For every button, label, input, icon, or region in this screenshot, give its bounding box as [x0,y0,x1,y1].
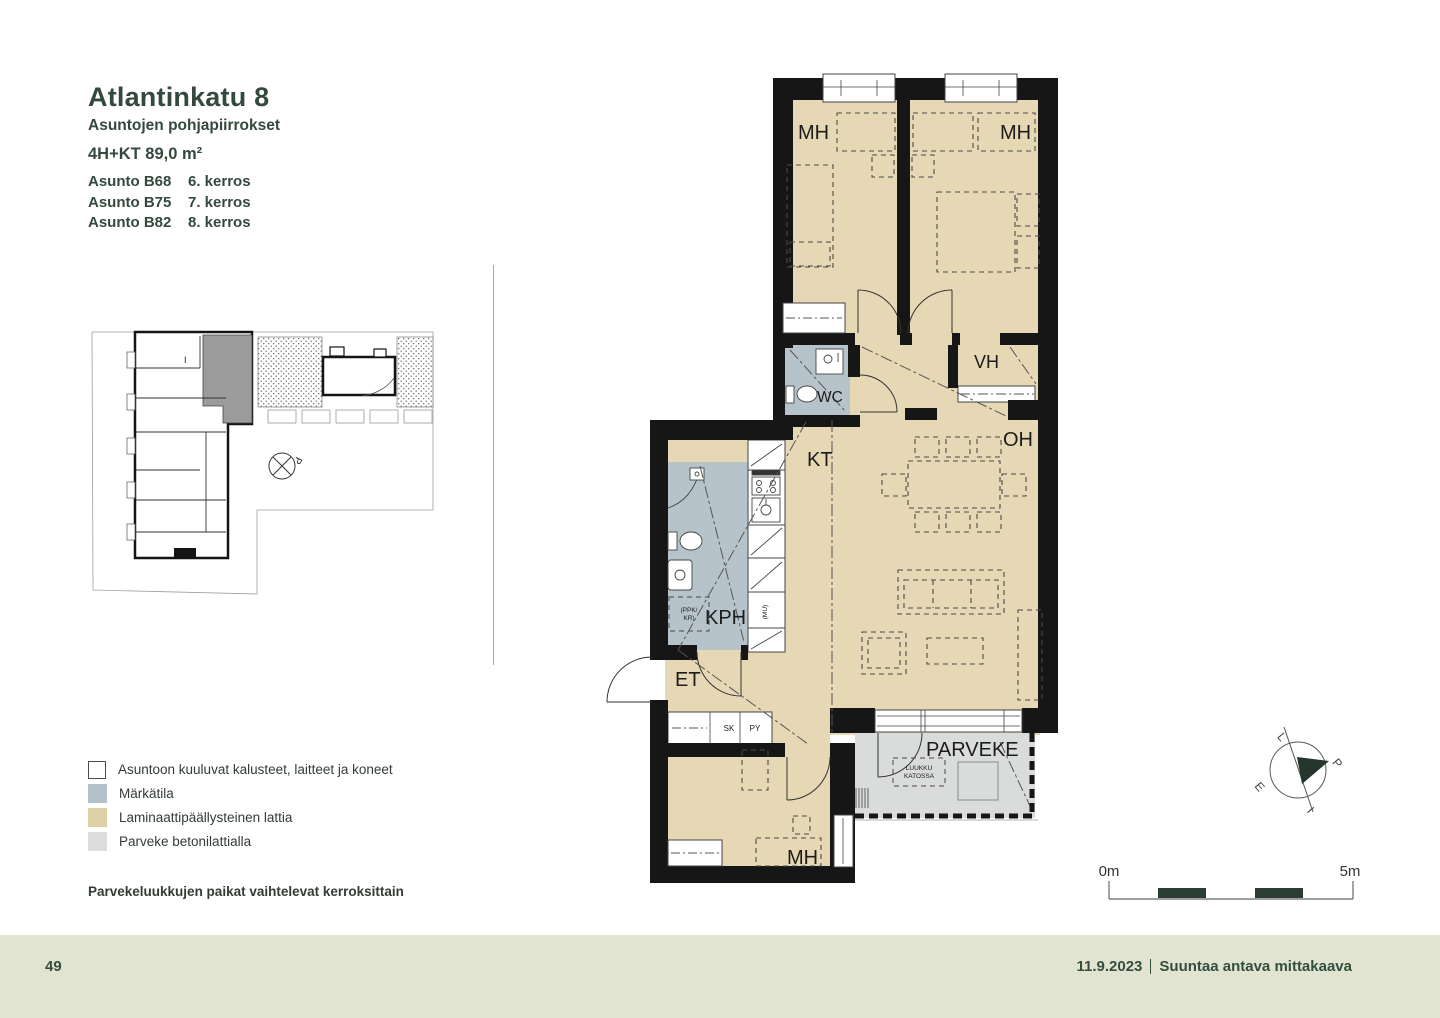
legend-label: Asuntoon kuuluvat kalusteet, laitteet ja… [118,762,393,777]
hatch-note: LUUKKU [906,765,933,772]
stove-icon [752,470,780,475]
footer-scale-note: Suuntaa antava mittakaava [1159,958,1352,975]
footer-info: 11.9.2023 Suuntaa antava mittakaava [1077,958,1353,975]
footer-band [0,935,1440,1018]
site-plan: P I [80,320,460,610]
vertical-divider [493,265,494,665]
apartment-type: 4H+KT 89,0 m² [88,145,202,164]
legend-label: Märkätila [119,786,174,801]
scale-start-label: 0m [1099,863,1120,880]
compass-letters: L P E I [1252,730,1346,816]
toilet-icon [680,532,702,550]
footer-separator [1150,959,1151,974]
room-label-entry: ET [675,669,701,691]
room-label-kitchen: KT [807,449,833,471]
legend: Asuntoon kuuluvat kalusteet, laitteet ja… [88,760,393,856]
washer-note: (PPK/ [681,607,698,614]
dresser [668,840,722,866]
footer-date: 11.9.2023 [1077,958,1143,975]
legend-swatch-wetroom [88,784,107,803]
closet-label-py: PY [750,724,761,733]
dresser [783,303,845,333]
outbuilding-detail [374,349,386,357]
site-unit-mark: I [184,355,187,365]
unit-row: Asunto B82 8. kerros [88,213,251,234]
toilet-icon [786,386,794,403]
site-compass: P [269,453,304,479]
apartment-floor-plan: MH MH VH WC OH KT KPH ET SK PY MH PARVEK… [600,60,1080,900]
sink-icon [668,560,692,590]
site-north-label: P [291,455,304,466]
room-label-bedroom: MH [787,847,818,869]
legend-label: Laminaattipäällysteinen lattia [119,810,292,825]
yard-plot [370,410,398,423]
unit-list: Asunto B68 6. kerros Asunto B75 7. kerro… [88,172,251,234]
toilet-icon [797,386,817,402]
yard-plot [404,410,432,423]
unit-floor: 7. kerros [188,193,251,214]
legend-swatch-balcony [88,832,107,851]
courtyard-deck [397,337,433,407]
page-number: 49 [45,958,62,975]
room-label-wc: WC [817,389,843,406]
floor-plan-page: Atlantinkatu 8 Asuntojen pohjapiirrokset… [0,0,1440,1018]
hatch-note: KATOSSA [904,773,935,780]
unit-name: Asunto B82 [88,213,188,234]
microwave-note: (MU) [762,605,769,619]
room-label-bathroom: KPH [705,607,746,629]
unit-name: Asunto B68 [88,172,188,193]
compass-north: P [1329,756,1345,771]
room-label-balcony: PARVEKE [926,739,1019,761]
room-label-bedroom: MH [1000,122,1031,144]
balcony-hatch-note: Parvekeluukkujen paikat vaihtelevat kerr… [88,884,404,899]
legend-swatch-fixtures [88,761,106,779]
outbuilding-detail [330,347,344,356]
scale-segment [1255,888,1303,898]
legend-item: Laminaattipäällysteinen lattia [88,808,393,827]
yard-plot [302,410,330,423]
legend-item: Märkätila [88,784,393,803]
living-room-window-wall [875,710,1022,732]
outbuilding [323,357,395,395]
unit-floor: 8. kerros [188,213,251,234]
page-title: Atlantinkatu 8 [88,82,269,113]
yard-plot [268,410,296,423]
room-label-living: OH [1003,429,1033,451]
legend-swatch-laminate [88,808,107,827]
unit-row: Asunto B75 7. kerros [88,193,251,214]
legend-label: Parveke betonilattialla [119,834,251,849]
unit-name: Asunto B75 [88,193,188,214]
legend-item: Asuntoon kuuluvat kalusteet, laitteet ja… [88,760,393,779]
unit-row: Asunto B68 6. kerros [88,172,251,193]
legend-item: Parveke betonilattialla [88,832,393,851]
courtyard-deck [258,337,322,407]
scale-bar: 0m 5m [1090,855,1370,915]
yard-plot [336,410,364,423]
room-label-closet: VH [974,352,999,372]
unit-floor: 6. kerros [188,172,251,193]
scale-end-label: 5m [1340,863,1361,880]
wc-basin [816,349,843,374]
compass-south: E [1252,779,1268,794]
window [945,74,1017,102]
window [823,74,895,102]
closet-label-sk: SK [724,724,735,733]
scale-segment [1158,888,1206,898]
toilet-icon [668,532,677,550]
washer-note: KR) [683,615,694,622]
page-subtitle: Asuntojen pohjapiirrokset [88,117,280,135]
building-entry-marker [174,548,196,558]
room-label-bedroom: MH [798,122,829,144]
compass-rose: L P E I [1250,710,1380,840]
bedroom-window [834,815,853,867]
